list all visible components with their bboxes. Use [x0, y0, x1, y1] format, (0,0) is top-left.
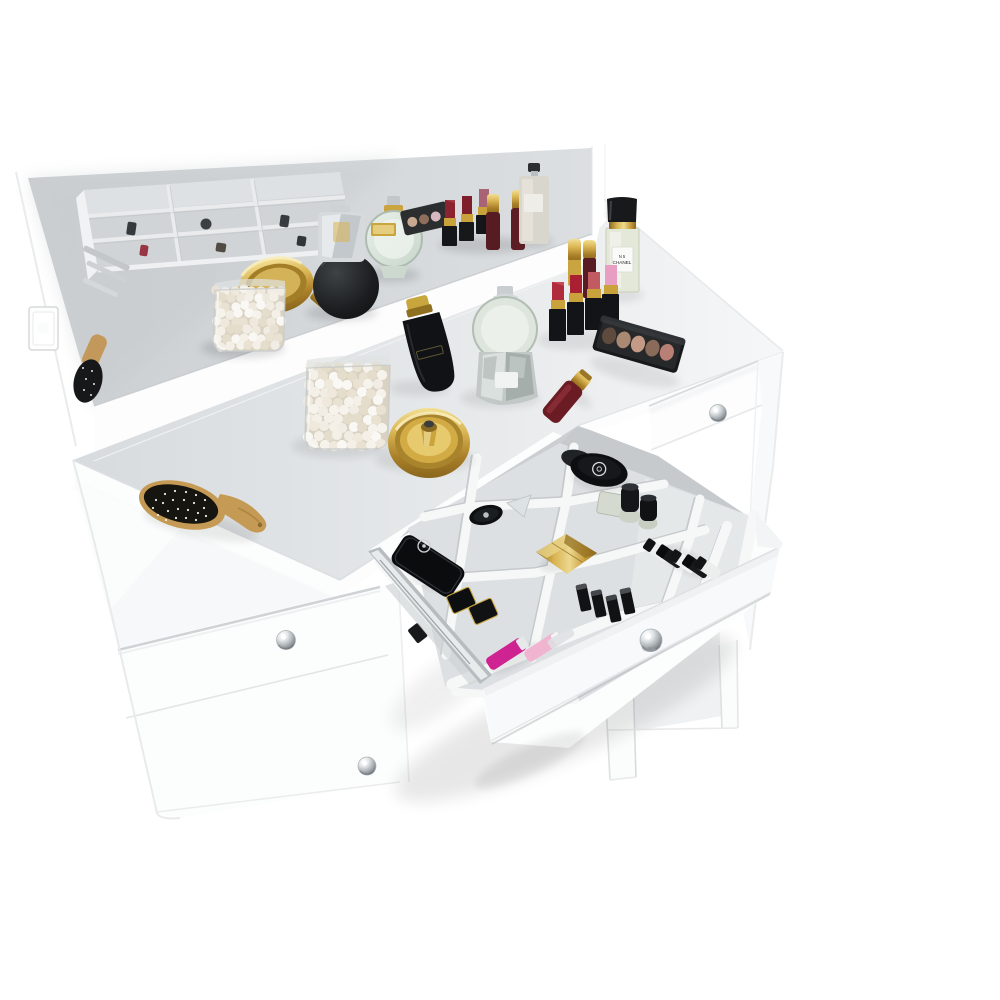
- svg-text:CHANEL: CHANEL: [613, 260, 632, 265]
- svg-text:N 5: N 5: [619, 254, 626, 259]
